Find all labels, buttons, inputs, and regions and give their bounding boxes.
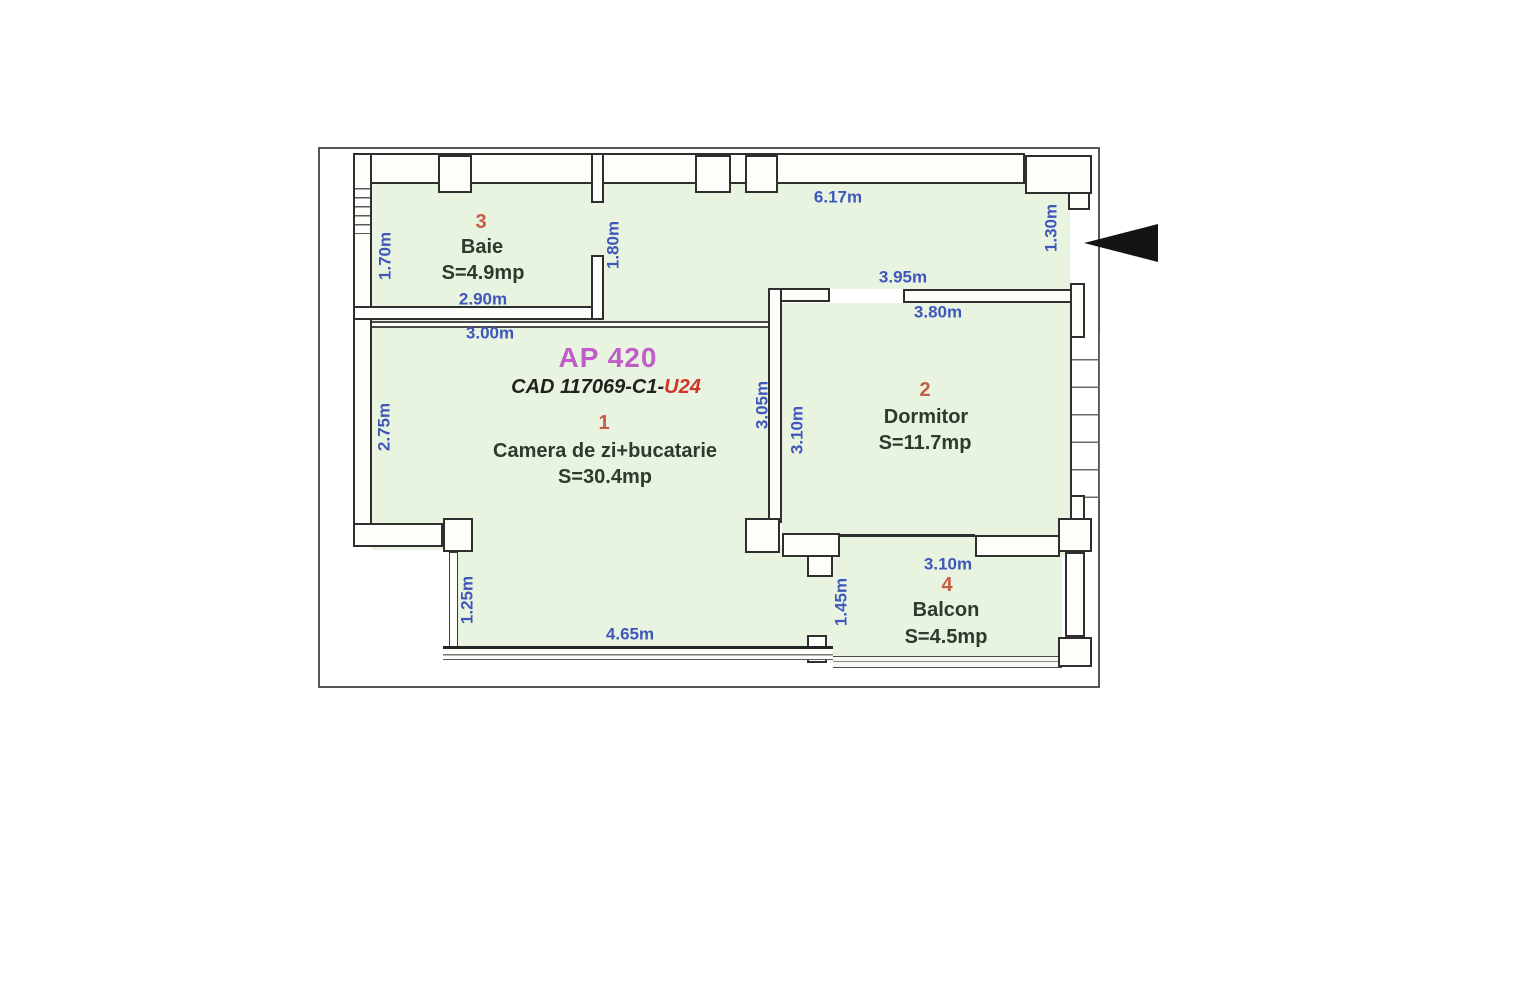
room-dormitor-number: 2 — [919, 380, 930, 400]
wall-balcon-right — [1065, 552, 1085, 637]
window-left-hatch — [355, 188, 370, 234]
dim-baie-width: 2.90m — [459, 291, 507, 308]
apartment-title: AP 420 — [559, 344, 658, 372]
wall-living-bottom-left — [353, 523, 443, 547]
dim-dormitor-top-inner: 3.80m — [914, 304, 962, 321]
floor-dormitor — [782, 303, 1070, 557]
cad-prefix: CAD 117069-C1- — [511, 376, 664, 398]
column-top-1 — [438, 155, 472, 193]
room-balcon-area: S=4.5mp — [905, 627, 988, 647]
column-top-right-notch — [1068, 192, 1090, 210]
dim-living-bottom-window: 4.65m — [606, 626, 654, 643]
dim-below-baie: 3.00m — [466, 325, 514, 342]
balcon-bottom-rail — [833, 656, 1062, 668]
dim-baie-right: 1.80m — [605, 221, 622, 269]
column-top-2 — [695, 155, 731, 193]
wall-balcon-left-top — [807, 555, 833, 577]
cad-number: CAD 117069-C1-U24 — [511, 377, 701, 397]
wall-dormitor-right-top — [1070, 283, 1085, 338]
column-dormitor-balcon-right — [1058, 518, 1092, 552]
room-dormitor-name: Dormitor — [884, 407, 968, 427]
room-balcon-number: 4 — [941, 575, 952, 595]
sill-dormitor-balcon — [840, 534, 975, 537]
dim-living-left: 2.75m — [376, 403, 393, 451]
window-living-bottom — [443, 646, 833, 660]
wall-baie-right — [591, 255, 604, 320]
room-living-area: S=30.4mp — [558, 467, 652, 487]
entrance-arrow-icon — [1084, 224, 1158, 262]
room-baie-area: S=4.9mp — [442, 263, 525, 283]
cad-unit: U24 — [664, 376, 701, 398]
room-baie-name: Baie — [461, 237, 503, 257]
dim-balcon-width: 3.10m — [924, 556, 972, 573]
dim-entrance: 1.30m — [1043, 204, 1060, 252]
dim-dormitor-top-outer: 3.95m — [879, 269, 927, 286]
column-top-3 — [745, 155, 778, 193]
column-divider-bottom — [745, 518, 780, 553]
dim-divider-left: 3.05m — [754, 381, 771, 429]
wall-dormitor-bottom-left — [782, 533, 840, 557]
dim-baie-height: 1.70m — [377, 232, 394, 280]
floor-plan: 6.17m 1.30m 2.90m 3.00m 1.70m 1.80m 2.75… — [0, 0, 1527, 1000]
room-living-number: 1 — [598, 413, 609, 433]
dim-dormitor-left: 3.10m — [789, 406, 806, 454]
window-right-hatch — [1070, 333, 1100, 501]
room-baie-number: 3 — [475, 212, 486, 232]
wall-baie-right-stub — [591, 153, 604, 203]
wall-dormitor-top-left — [780, 288, 830, 302]
column-top-right — [1025, 155, 1092, 194]
dim-living-bottom-left: 1.25m — [459, 576, 476, 624]
column-living-bottom — [443, 518, 473, 552]
column-balcon-bottom-right — [1058, 637, 1092, 667]
wall-dormitor-top-right — [903, 289, 1073, 303]
wall-dormitor-bottom-right — [975, 535, 1060, 557]
dim-balcon-door: 1.45m — [833, 578, 850, 626]
beam-line — [372, 321, 768, 328]
room-dormitor-area: S=11.7mp — [879, 433, 972, 453]
room-balcon-name: Balcon — [913, 600, 980, 620]
room-living-name: Camera de zi+bucatarie — [493, 441, 717, 461]
dim-top-width: 6.17m — [814, 189, 862, 206]
